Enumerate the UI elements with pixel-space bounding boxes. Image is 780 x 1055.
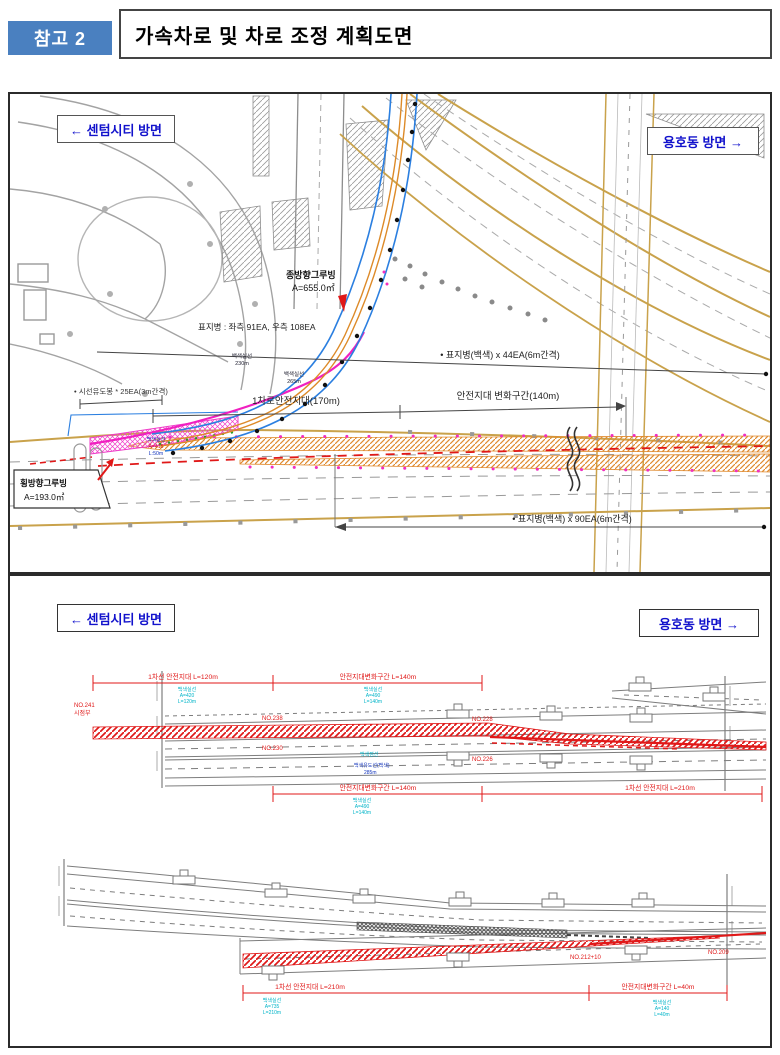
d2-dim-bottom-left: 1차선 안전지대 L=210m <box>275 982 345 991</box>
d1-sta-c: NO.228 <box>472 717 493 723</box>
white-solid-50-1: 백색실선 <box>146 435 165 443</box>
grooving-cross-label-1: 횡방향그루빙 <box>20 478 67 488</box>
page-title: 가속차로 및 차로 조정 계획도면 <box>121 20 413 49</box>
d2-cyan-r-1: 백색실선 <box>653 999 672 1006</box>
d1-sta-d: NO.226 <box>472 757 493 763</box>
d1-cyan-tr-1: 백색실선 <box>364 686 383 693</box>
delineator-label: • 시선유도봉 * 25EA(3m간격) <box>74 386 168 396</box>
d1-mid-navy-2: 285m <box>364 770 377 776</box>
d1-cyan-tl-1: 백색실선 <box>178 686 197 693</box>
d1-sta-a: NO.238 <box>262 716 283 722</box>
d2-sta-end: NO.209 <box>708 950 729 956</box>
schematic-drawing-2: 1차선 안전지대 L=210m 안전지대변화구간 L=40m 백색실선 A=73… <box>59 859 766 1018</box>
direction-label-yongho-dong: 용호동 방면 → <box>647 127 759 155</box>
d1-dim-bottom-right: 1차선 안전지대 L=210m <box>625 783 695 792</box>
schematic-drawing-1: 1차선 안전지대 L=120m 안전지대변화구간 L=140m 백색실선 A=4… <box>74 671 766 816</box>
white-solid-50-2: A=415 <box>148 444 163 450</box>
d2-cyan-r-3: L=40m <box>654 1012 669 1018</box>
d1-mid-cyan: 백색점선 <box>360 751 379 758</box>
safety-170-label: 1차로안전지대(170m) <box>252 395 340 407</box>
gore-markings <box>30 332 770 512</box>
grooving-long-label-2: A=655.0㎡ <box>292 283 335 293</box>
stud-total-label: 표지병 : 좌측 91EA, 우측 108EA <box>198 322 316 332</box>
plan-drawing-panel-top: ← 센텀시티 방면 용호동 방면 → <box>8 92 772 574</box>
interchange-plan-svg: 표지병 : 좌측 91EA, 우측 108EA 종방향그루빙 A=655.0㎡ … <box>10 94 770 572</box>
d2-sta-mid: NO.212+10 <box>570 955 602 961</box>
d1-dim-top-left: 1차선 안전지대 L=120m <box>148 672 218 681</box>
tree-row <box>395 259 545 320</box>
red-hatch-band-1 <box>93 723 766 750</box>
white-solid-50-3: L:50m <box>149 451 163 457</box>
traffic-islands-hatched <box>220 96 764 282</box>
plan-drawing-panel-bottom: ← 센텀시티 방면 용호동 방면 → <box>8 574 772 1048</box>
direction-label-yongho-dong-2: 용호동 방면 → <box>639 609 759 637</box>
stud-44-label: • 표지병(백색) x 44EA(6m간격) <box>440 349 560 360</box>
transition-140-label: 안전지대 변화구간(140m) <box>457 391 560 402</box>
d1-dim-top-right: 안전지대변화구간 L=140m <box>340 672 417 681</box>
d1-cyan-b-1: 백색실선 <box>353 797 372 804</box>
reference-badge: 참고 2 <box>8 21 112 55</box>
d1-sta-start-2: 시점부 <box>74 710 91 717</box>
grooving-long-label-1: 종방향그루빙 <box>286 269 336 280</box>
d1-cyan-b-3: L=140m <box>353 810 371 816</box>
d1-cyan-tl-3: L=120m <box>178 699 196 705</box>
white-solid-230-1: 백색실선 <box>232 352 252 360</box>
stud-90-label: • 표지병(백색) x 90EA(6m간격) <box>512 513 632 524</box>
lane-schematic-svg: 1차선 안전지대 L=120m 안전지대변화구간 L=140m 백색실선 A=4… <box>10 576 770 1046</box>
title-box: 가속차로 및 차로 조정 계획도면 <box>119 9 772 59</box>
document-page: { "header": { "badge": "참고 2", "title": … <box>0 0 780 1055</box>
d1-cyan-tr-3: L=140m <box>364 699 382 705</box>
grooving-cross-label-2: A=193.0㎡ <box>24 492 65 502</box>
white-solid-265-1: 백색실선 <box>284 370 304 378</box>
d1-dim-bottom-left: 안전지대변화구간 L=140m <box>340 783 417 792</box>
direction-label-centum-city: ← 센텀시티 방면 <box>57 115 175 143</box>
direction-label-centum-city-2: ← 센텀시티 방면 <box>57 604 175 632</box>
d2-cyan-l-3: L=210m <box>263 1010 281 1016</box>
d1-mid-navy-1: 백색유도선(백색) <box>354 762 390 769</box>
d1-sta-start-1: NO.241 <box>74 703 95 709</box>
d2-cyan-l-1: 백색실선 <box>263 997 282 1004</box>
d2-dim-bottom-right: 안전지대변화구간 L=40m <box>622 982 695 991</box>
white-solid-265-2: 265m <box>287 379 301 385</box>
white-solid-230-2: 230m <box>235 361 249 367</box>
d1-sta-b: NO.230 <box>262 746 283 752</box>
